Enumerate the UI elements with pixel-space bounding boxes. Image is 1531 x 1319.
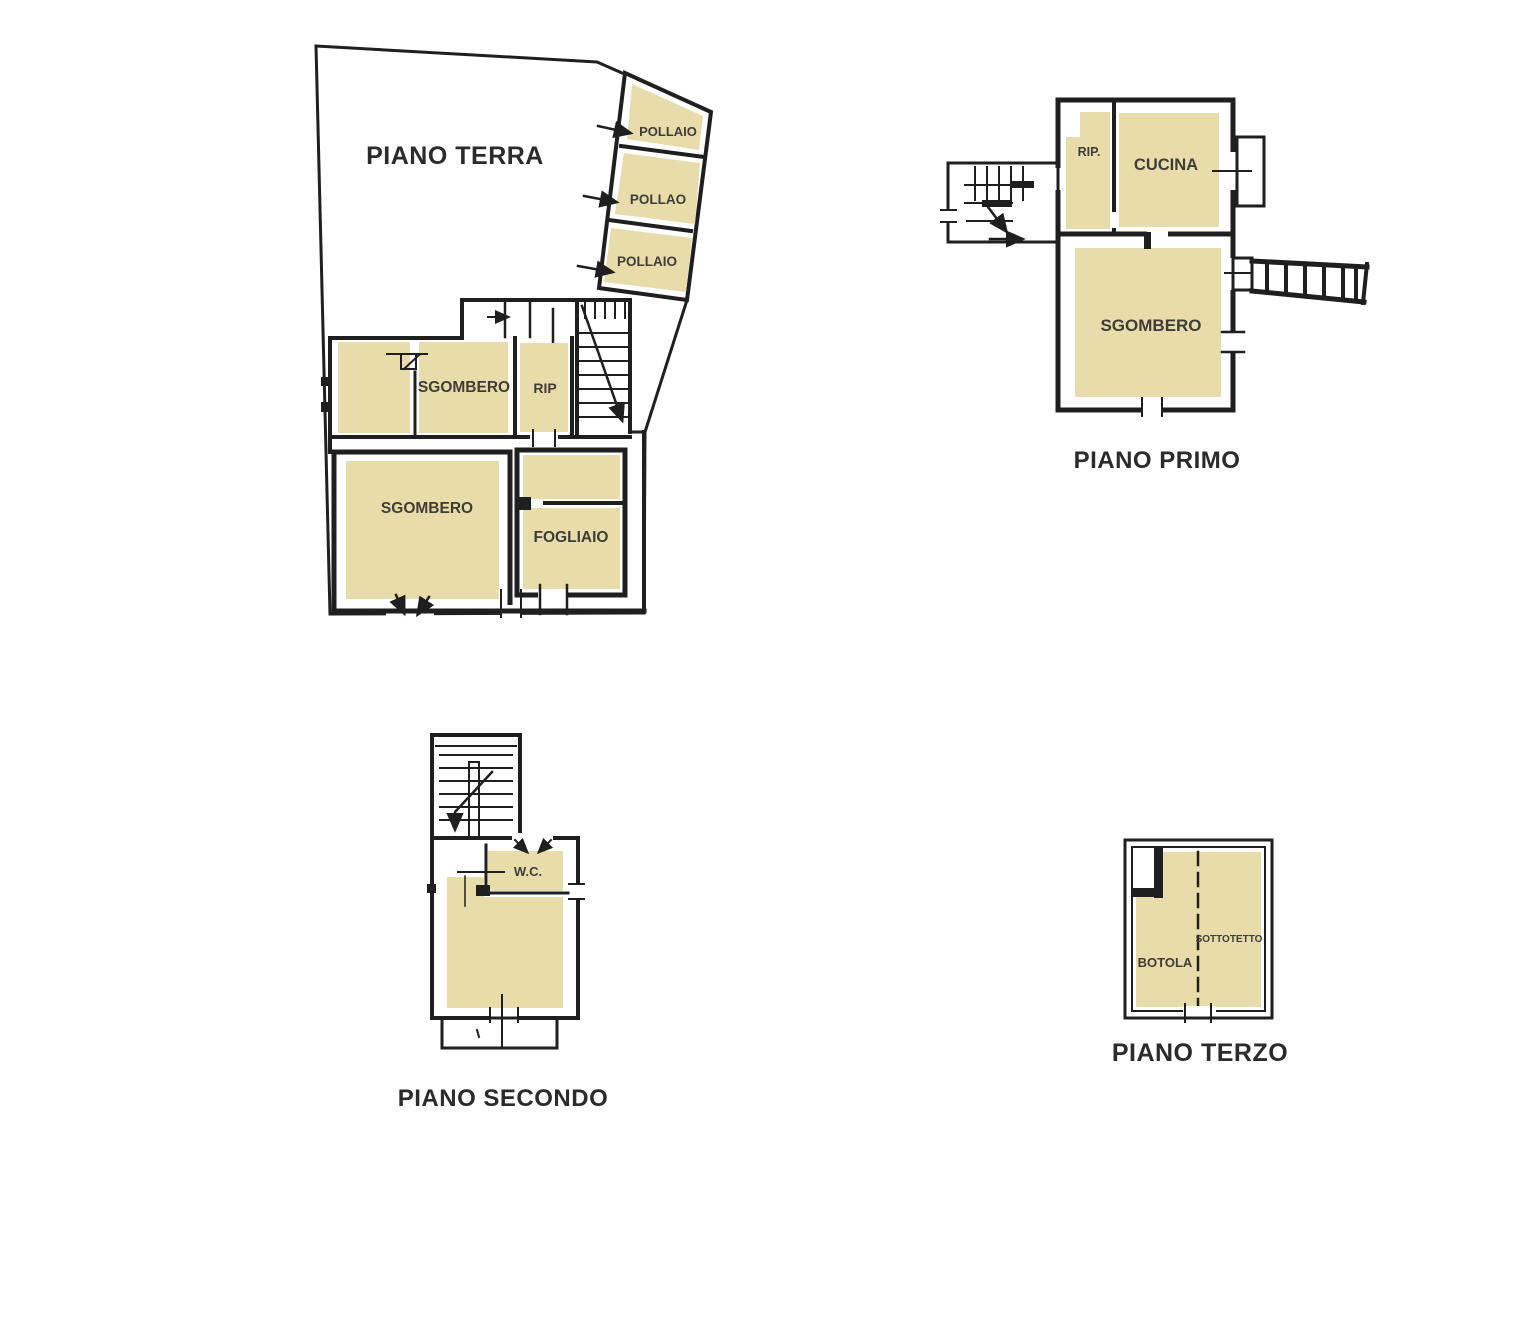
balcony-mark: [477, 1030, 479, 1037]
label-pollaio-bottom: POLLAIO: [617, 254, 677, 269]
title-piano-secondo: PIANO SECONDO: [398, 1085, 609, 1112]
floorplan-drawing: POLLAIO POLLAO POLLAIO SGOMBERO: [0, 0, 1531, 1319]
secondo-right-window-gap: [573, 884, 581, 899]
room-fogliaio-lower: [523, 508, 620, 589]
room-rip-primo: [1066, 112, 1110, 229]
ext-stair-window-gap: [944, 210, 952, 222]
primo-balcony: [1213, 137, 1264, 206]
ext-stair-steps: [965, 167, 1028, 221]
rip-door-gap: [530, 433, 558, 441]
label-rip: RIP: [533, 380, 556, 396]
label-pollao-mid: POLLAO: [630, 192, 686, 207]
label-fogliaio: FOGLIAIO: [534, 529, 609, 546]
secondo-stair-tower: [432, 735, 520, 838]
room-fogliaio-upper: [523, 455, 620, 499]
floorplan-page: POLLAIO POLLAO POLLAIO SGOMBERO: [0, 0, 1531, 1319]
label-sottotetto: SOTTOTETTO: [1196, 934, 1263, 945]
label-sgombero-lower: SGOMBERO: [381, 500, 473, 517]
title-piano-terzo: PIANO TERZO: [1112, 1039, 1288, 1067]
label-sgombero-primo: SGOMBERO: [1100, 316, 1201, 335]
title-piano-terra: PIANO TERRA: [366, 142, 544, 170]
room-sgombero-upper-left: [338, 342, 410, 433]
label-rip-primo: RIP.: [1078, 145, 1101, 159]
floor-piano-secondo: W.C. PIANO SECONDO: [398, 735, 609, 1112]
title-piano-primo: PIANO PRIMO: [1074, 447, 1241, 474]
label-wc: W.C.: [514, 864, 542, 879]
secondo-top-door-gap: [512, 833, 553, 843]
label-sgombero-upper: SGOMBERO: [418, 379, 510, 396]
ladder-rail-top: [1252, 261, 1367, 267]
ground-upper-band: SGOMBERO RIP: [321, 300, 630, 452]
ext-stair-landing-bar-1: [1012, 181, 1034, 188]
ground-stairs: [577, 300, 628, 437]
secondo-left-window: [427, 884, 436, 893]
room-pollao-mid: [615, 153, 700, 224]
label-pollaio-top: POLLAIO: [639, 124, 697, 139]
ladder-end-cap: [1363, 264, 1367, 303]
primo-ladder: [1225, 258, 1367, 303]
tower-steps: [440, 755, 512, 838]
room-sgombero-lower: [346, 461, 499, 599]
primo-external-stair: [941, 163, 1058, 242]
ground-lower-band: SGOMBERO FOGLIAIO: [334, 432, 644, 617]
label-botola: BOTOLA: [1138, 955, 1193, 970]
floor-piano-primo: RIP. CUCINA SGOMBERO: [941, 100, 1367, 474]
floor-piano-terzo: BOTOLA SOTTOTETTO PIANO TERZO: [1112, 840, 1288, 1067]
rip-cucina-door-gap: [1110, 212, 1118, 228]
secondo-balcony: [442, 1018, 557, 1048]
fogliaio-bottom-door-gap: [538, 589, 568, 600]
ext-stair-arrow-down: [985, 203, 1006, 231]
primo-right-window-gap: [1229, 332, 1237, 352]
hall-partitions: [505, 300, 553, 346]
terzo-hatch-corner: [1133, 848, 1163, 898]
left-wall-window-1: [321, 377, 332, 386]
hatch-opening: [1133, 850, 1157, 888]
primo-mid-door-stub: [1144, 232, 1151, 249]
pollaio-strip: POLLAIO POLLAO POLLAIO: [578, 73, 711, 300]
fogliaio-door-jamb: [518, 497, 531, 510]
primo-bottom-door-gap: [1141, 404, 1163, 414]
label-cucina: CUCINA: [1134, 156, 1198, 174]
left-wall-window-2: [321, 402, 332, 412]
secondo-door-jamb: [476, 885, 490, 896]
tower-outline: [432, 735, 520, 838]
floor-piano-terra: POLLAIO POLLAO POLLAIO SGOMBERO: [316, 46, 711, 617]
hatch-wall-horizontal: [1133, 888, 1163, 897]
